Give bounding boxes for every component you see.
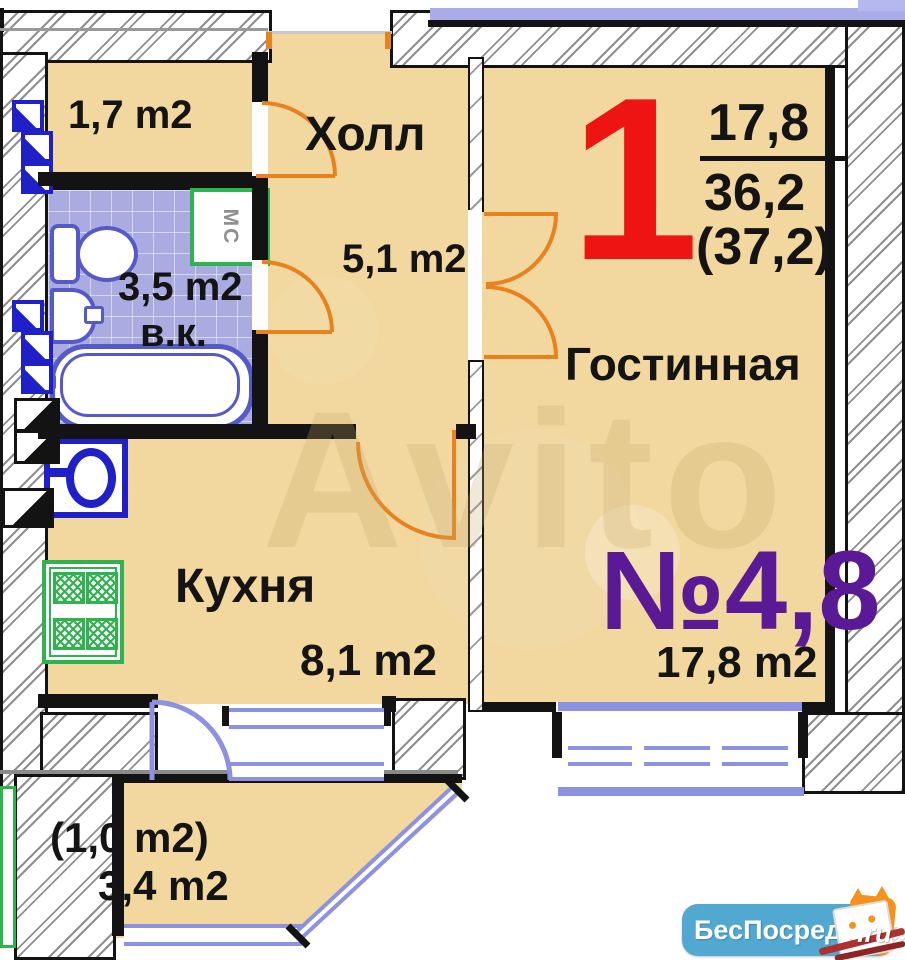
- wall-bath-hall-1: [252, 52, 268, 104]
- unit-number: 1: [570, 70, 699, 290]
- site-logo-suffix: .ru: [857, 918, 892, 949]
- utility-shaft-icon: [12, 100, 44, 132]
- wall-bottom-mid: [392, 698, 466, 780]
- closet-area-label: 1,7 m2: [68, 94, 193, 136]
- burner-icon: [53, 572, 85, 604]
- utility-shaft-icon: [12, 300, 44, 332]
- mascot-ear: [874, 886, 890, 900]
- bath-abbr-label: в.к.: [140, 312, 207, 354]
- neighbor-block: [858, 0, 905, 11]
- balcony-door-arc: [152, 702, 230, 780]
- burner-icon: [86, 618, 118, 650]
- neighbor-balcony-strip: [0, 786, 16, 948]
- living-area-top-label: 17,8: [708, 96, 809, 151]
- kitchen-sink-bowl: [66, 448, 116, 508]
- kitchen-name-label: Кухня: [175, 562, 315, 612]
- area-fraction-line: [700, 156, 848, 161]
- wall-hall-living-upper: [468, 57, 484, 212]
- stove-icon: [42, 560, 124, 664]
- hall-name-label: Холл: [305, 110, 426, 160]
- bay-window-mid-1: [568, 746, 632, 766]
- vent-shaft-icon: [2, 488, 54, 528]
- wall-kitchen-bottom: [38, 694, 158, 708]
- bay-window-mid-3: [722, 746, 788, 766]
- bathtub-inner: [60, 353, 240, 417]
- entrance-jamb-right: [385, 32, 391, 49]
- total-area-label: 36,2: [704, 166, 805, 221]
- mascot-ear: [850, 888, 866, 902]
- bay-window-bottom: [558, 787, 804, 796]
- flat-number-label: №4,8: [600, 532, 881, 650]
- wall-below-kitchen: [40, 712, 158, 776]
- mc-cabinet-label: МС: [218, 209, 242, 246]
- living-name-label: Гостинная: [565, 340, 801, 388]
- kitchen-window-inner: [229, 708, 384, 729]
- grey-line-entrance: [266, 31, 392, 34]
- washbasin-tap-icon: [84, 306, 104, 324]
- bay-window-top: [558, 702, 802, 711]
- balcony-area-label: 3,4 m2: [98, 864, 229, 908]
- wall-closet-bath: [38, 172, 266, 186]
- floor-plan: МС Avito 1,7: [0, 0, 905, 960]
- closet-doorway: [252, 102, 268, 176]
- neighbor-strip-top: [430, 8, 905, 20]
- balcony-glazing-bottom: [124, 924, 302, 946]
- burner-icon: [53, 618, 85, 650]
- bay-window-mid-2: [644, 746, 710, 766]
- living-area-label: 17,8 m2: [656, 640, 817, 686]
- living-doorway: [468, 210, 482, 360]
- window-jamb-right: [384, 706, 391, 726]
- kitchen-sink-handle: [50, 468, 72, 477]
- wall-bottom-right: [802, 712, 905, 794]
- utility-shaft-icon: [21, 131, 53, 163]
- hall-area-label: 5,1 m2: [342, 238, 467, 280]
- utility-shaft-icon: [21, 331, 53, 363]
- burner-icon: [86, 572, 118, 604]
- neighbor-strip-line: [428, 20, 905, 27]
- balcony-paren-label: (1,0 m2): [50, 816, 209, 860]
- utility-shaft-icon: [21, 362, 53, 394]
- kitchen-area-label: 8,1 m2: [300, 638, 437, 684]
- bath-doorway: [252, 260, 268, 330]
- kitchen-window-outer: [229, 762, 384, 781]
- bath-area-label: 3,5 m2: [118, 266, 243, 308]
- grey-line-top: [0, 28, 268, 31]
- window-jamb-left: [222, 706, 229, 726]
- entrance-jamb-left: [266, 32, 272, 49]
- total-area-paren-label: (37,2): [696, 220, 832, 275]
- wall-bath-hall-2: [252, 174, 268, 262]
